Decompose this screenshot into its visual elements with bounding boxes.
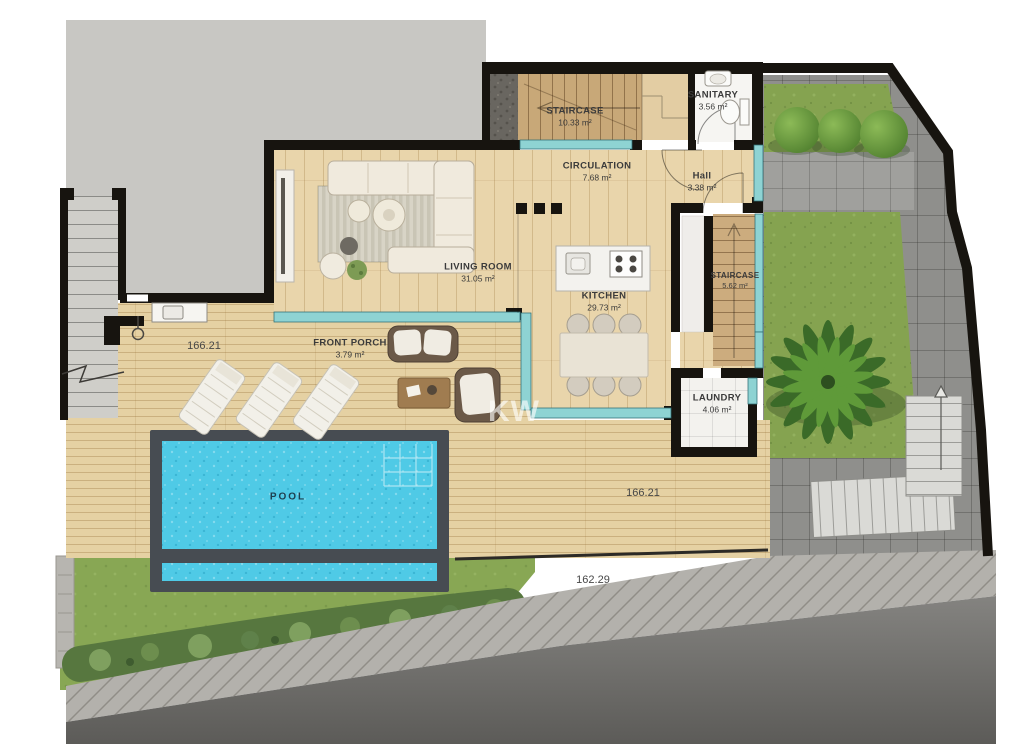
toilet-tank-icon [740,99,749,125]
dimension-terrace-left: 166.21 [187,340,221,352]
dimension-driveway: 162.29 [576,574,610,586]
side-table [320,253,346,279]
room-label-sanitary: SANITARY 3.56 m² [688,89,738,112]
room-label-laundry: LAUNDRY 4.06 m² [693,392,742,415]
outdoor-sink-icon [163,306,183,319]
exterior-staircase-west [60,188,126,420]
garden-east [764,212,918,458]
bush-icon [774,107,820,153]
room-label-staircase-upper: STAIRCASE 10.33 m² [546,105,603,128]
upper-stair-gravel [490,74,518,140]
bush-icon [818,109,862,153]
room-label-staircase-right: STAIRCASE 5.62 m² [711,271,760,291]
hall-east-window [754,145,763,201]
kitchen-furniture [556,246,650,396]
dining-table [560,333,648,377]
passage-east-window [755,332,763,368]
bush-icon [860,110,908,158]
living-sliding-door [274,312,520,322]
stair2-marble-wall [682,216,704,332]
window-under-stairs [520,140,632,149]
stove-icon [610,251,642,277]
coffee-table-small [348,200,370,222]
floor-plan-canvas [0,0,1024,752]
floor-plan: STAIRCASE 10.33 m² SANITARY 3.56 m² CIRC… [0,0,1024,752]
laundry-east-window [748,378,757,404]
pool-overflow-channel [162,563,437,581]
room-label-kitchen: KITCHEN 29.73 m² [582,290,627,313]
garden-north [764,84,910,159]
room-label-living-room: LIVING ROOM 31.05 m² [444,261,512,284]
pouf [340,237,358,255]
room-label-front-porch: FRONT PORCH 3.79 m² [313,337,387,360]
kitchen-south-glazing [531,408,671,418]
room-label-circulation: CIRCULATION 7.68 m² [563,160,632,183]
kw-watermark: KW [488,395,540,429]
room-label-hall: Hall 3.38 m² [688,170,717,193]
upper-stair-landing [642,74,688,140]
dimension-terrace-right: 166.21 [626,487,660,499]
pool [150,430,449,592]
room-label-pool: POOL [270,491,306,504]
outdoor-coffee-table [398,378,450,408]
plant-icon [347,260,367,280]
palm-tree-icon [766,320,890,444]
porch-window [127,295,148,302]
east-path [764,152,914,210]
